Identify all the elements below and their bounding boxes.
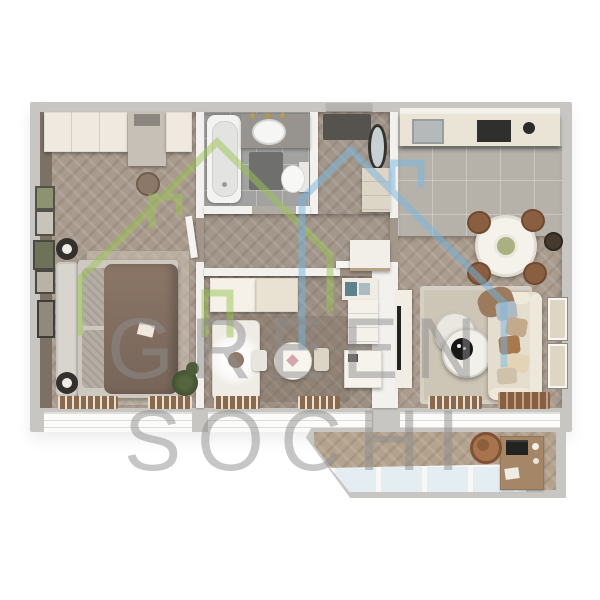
watermark-text-line1: GREEN [0,306,600,392]
storage-box-blue [345,282,357,296]
bath-mat [249,152,283,190]
wall-decor-rosette [544,232,563,251]
wall-sconce [280,113,285,118]
bathtub-drain [222,182,227,187]
kettle [523,122,535,134]
bedroom-wardrobe-right [166,112,192,152]
watermark-text-line2: SOCHI [0,398,600,484]
wall-bathroom-bottom-left [204,206,252,214]
doormat [323,114,371,140]
storage-box-gray [359,283,370,295]
kitchen-opening [390,218,398,262]
table-centerpiece [494,234,518,258]
bedroom-wall-frame [35,270,55,294]
hall-mirror [368,124,387,170]
bathroom-door-opening [252,206,296,214]
hall-console-cabinet [362,168,390,212]
wall-corridor-bottom [204,268,340,276]
wall-bathroom-bottom-right [296,206,310,214]
bathroom-sink [252,119,286,145]
wall-bathroom-right [310,112,318,214]
entrance-door [326,103,372,111]
sink-faucet [265,113,271,119]
shoe-cabinet [350,240,390,271]
vanity-mirror [134,114,160,126]
wall-entry-right [390,112,398,218]
bedroom-wardrobe-left [44,112,128,152]
bedroom-wall-frame [35,210,55,236]
bedside-lamp-shade [62,244,72,254]
toilet-bowl [281,165,305,193]
bedroom-wall-shelf [33,240,55,270]
wall-sconce [250,113,255,118]
bedroom-wall-frame [35,186,55,210]
cooktop [477,120,511,142]
floor-plan-render: GREEN SOCHI [0,0,600,600]
vanity-stool [136,172,160,196]
kitchen-sink [412,119,444,144]
